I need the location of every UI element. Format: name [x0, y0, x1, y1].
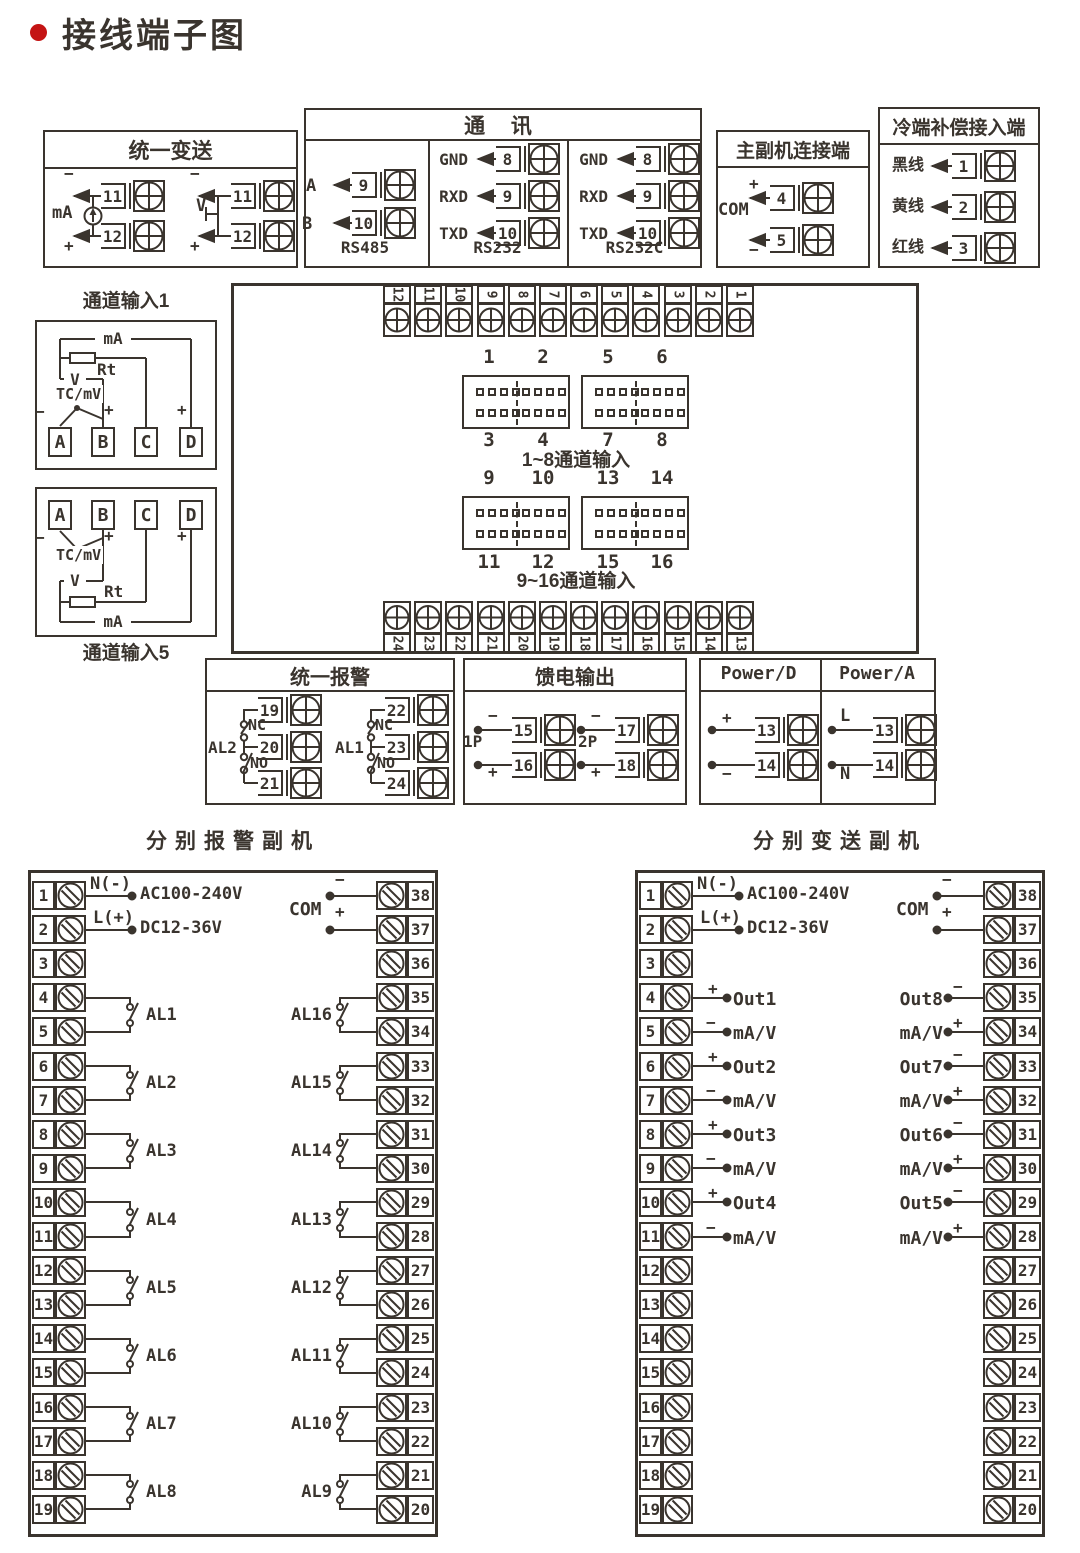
- wire-layer: [0, 0, 1080, 1553]
- wiring-terminal-diagram: 接线端子图 统一变送 通 讯 主副机连接端 冷端补偿接入端 通道输入1 通道输入…: [0, 0, 1080, 1553]
